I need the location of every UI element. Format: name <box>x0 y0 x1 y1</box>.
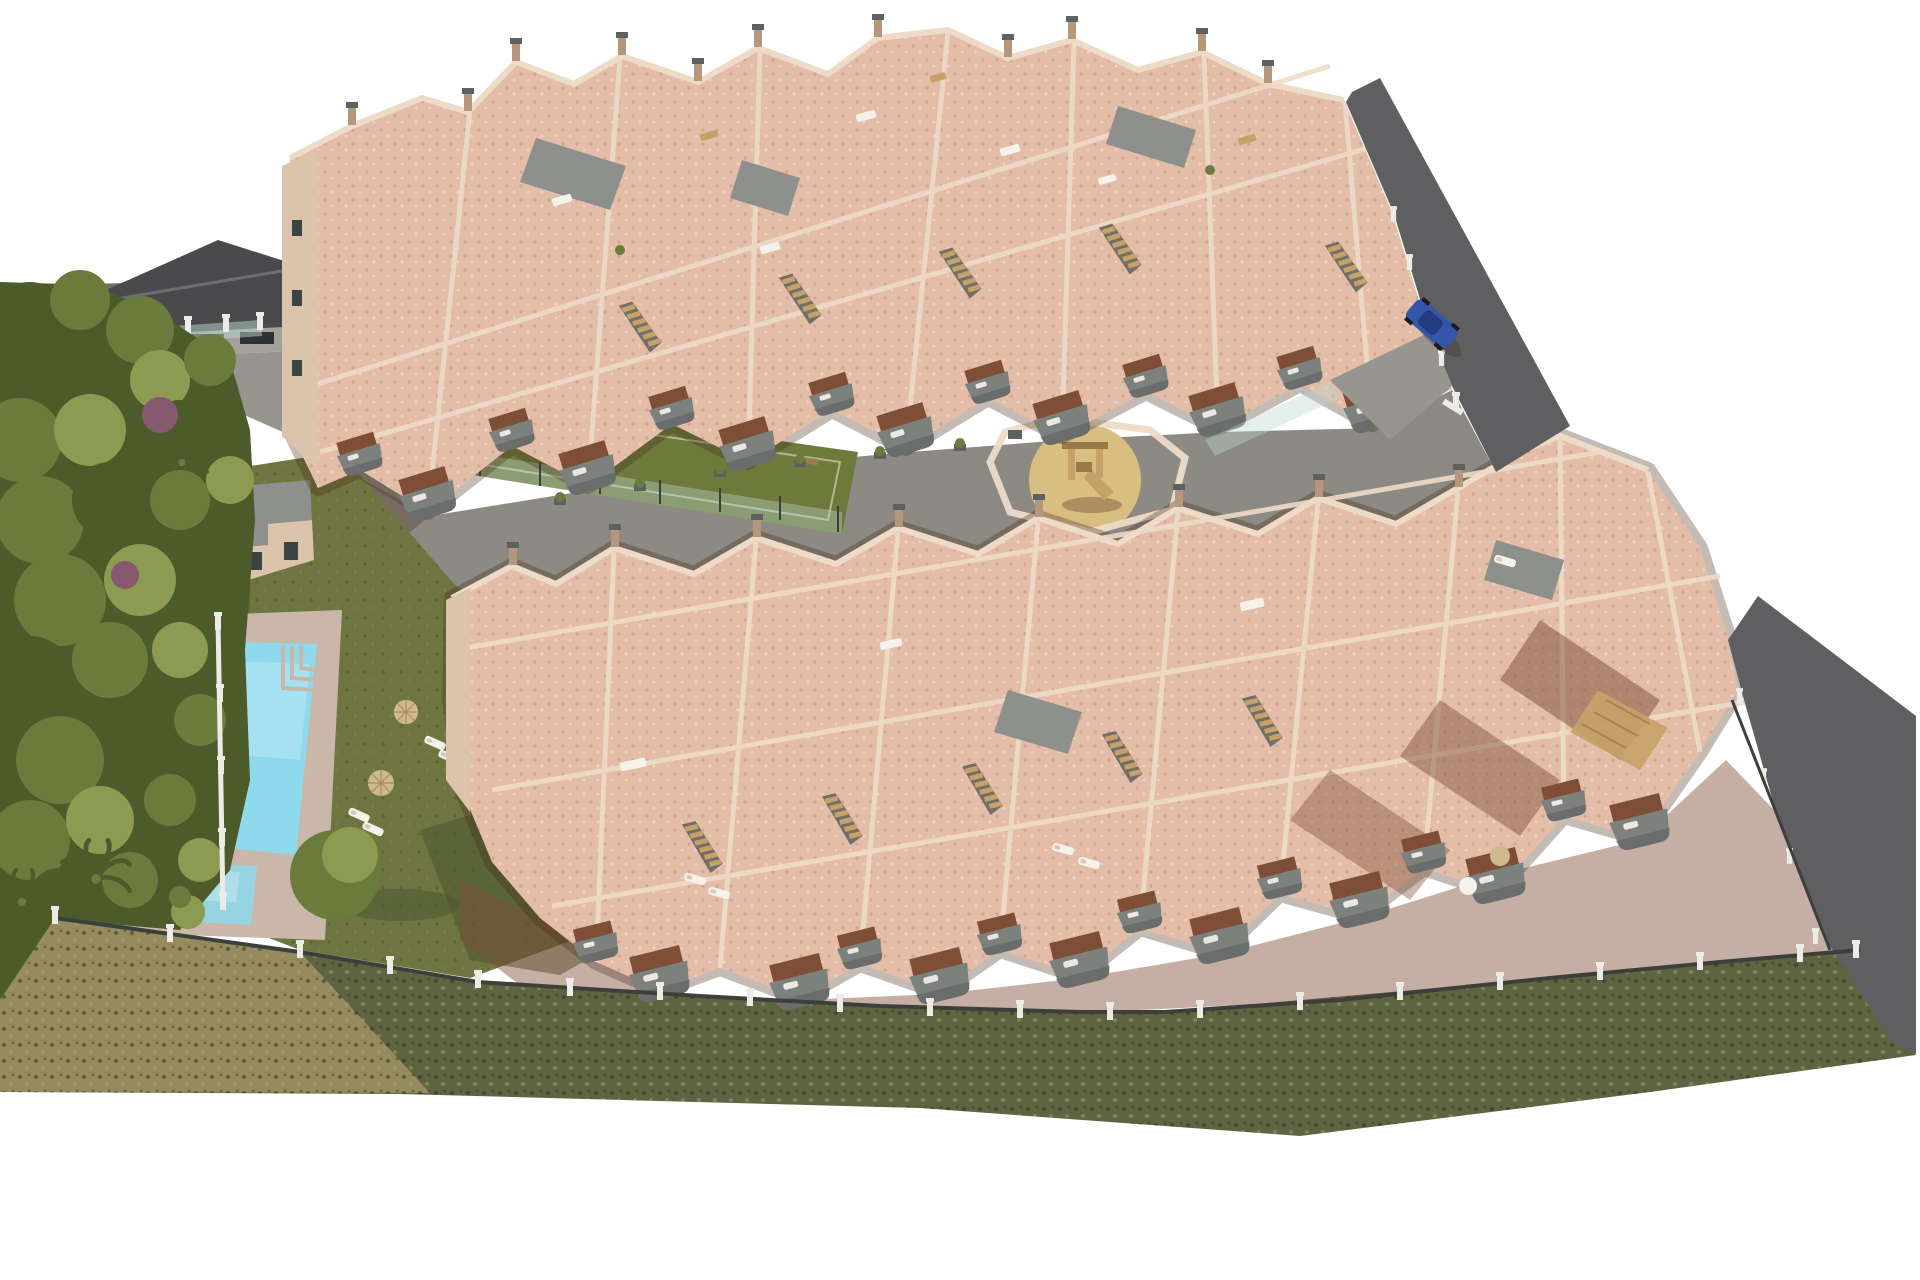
roof-plant <box>1205 165 1215 175</box>
upper-west-facade <box>282 150 318 470</box>
straw-parasol <box>394 700 418 724</box>
roof-plant <box>615 245 625 255</box>
scene-canvas: Aerial 3D architectural rendering of a n… <box>0 0 1920 1280</box>
hanging-chair <box>1459 877 1477 895</box>
purple-shrub <box>142 397 178 433</box>
aerial-render: Aerial 3D architectural rendering of a n… <box>0 0 1920 1280</box>
wicker-chair <box>1490 846 1510 866</box>
playground-sign <box>1008 430 1022 439</box>
straw-parasol <box>368 770 394 796</box>
pool-house-window <box>284 542 298 560</box>
purple-shrub <box>111 561 139 589</box>
lower-west-facade <box>446 588 470 812</box>
